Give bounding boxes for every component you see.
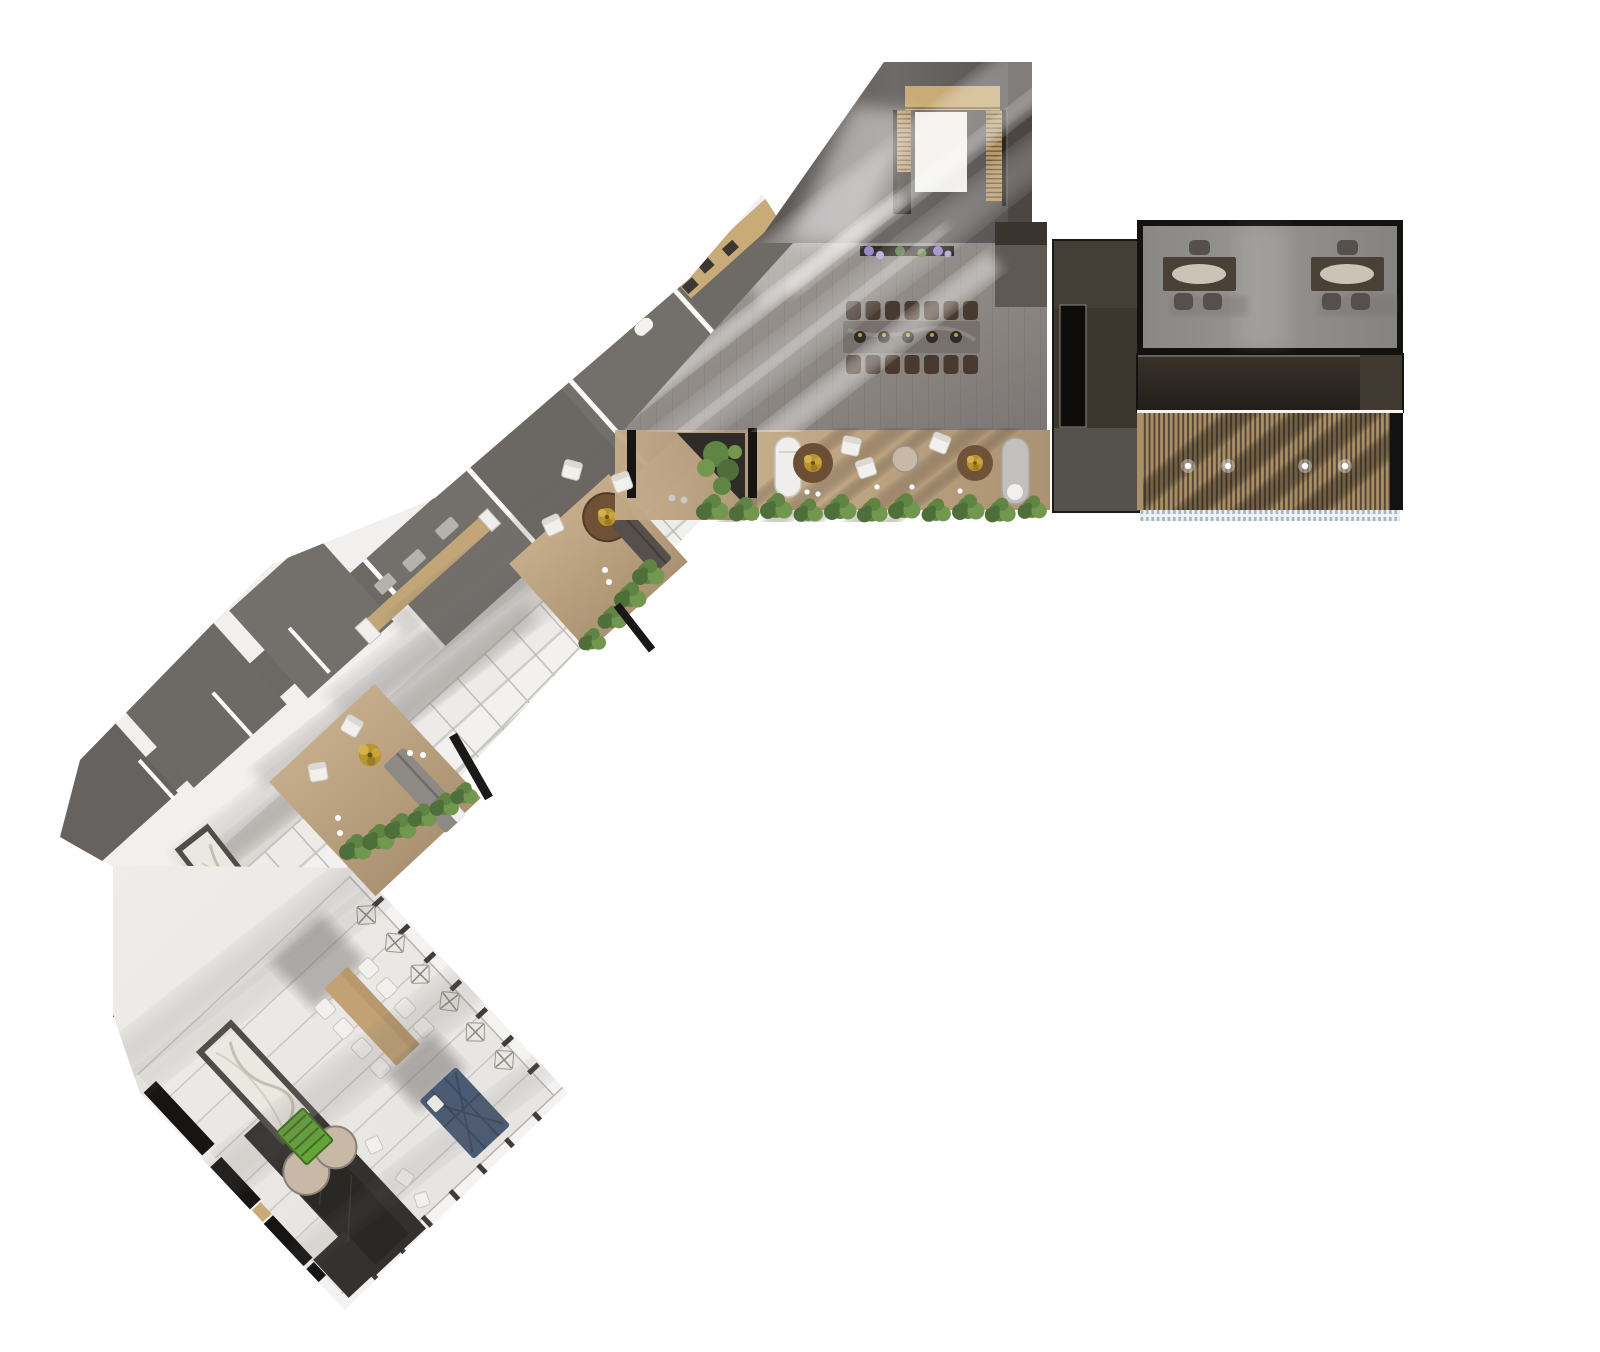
desk-chair xyxy=(1174,293,1193,310)
white-cube-chair xyxy=(561,459,583,481)
roof-block xyxy=(995,245,1047,307)
desk-chair xyxy=(1337,240,1358,255)
floor-plan-stage xyxy=(0,0,1600,1352)
desk-chair xyxy=(1189,240,1210,255)
desk-chair xyxy=(1203,293,1222,310)
white-cube-chair xyxy=(840,435,861,456)
meeting-room xyxy=(1137,220,1403,354)
glazing-fringe xyxy=(1140,510,1400,521)
roof-block xyxy=(995,222,1047,245)
desk-chair xyxy=(1322,293,1341,310)
floor-plan-render xyxy=(0,0,1600,1352)
desk-chair xyxy=(1351,293,1370,310)
white-lounge-chair xyxy=(308,762,329,783)
flowers xyxy=(864,246,874,256)
black-door-frame xyxy=(748,428,757,498)
dark-roof-band xyxy=(1137,354,1403,412)
table-plant xyxy=(598,508,616,526)
gold-shrub xyxy=(359,744,382,767)
black-door-panel xyxy=(1060,305,1086,427)
